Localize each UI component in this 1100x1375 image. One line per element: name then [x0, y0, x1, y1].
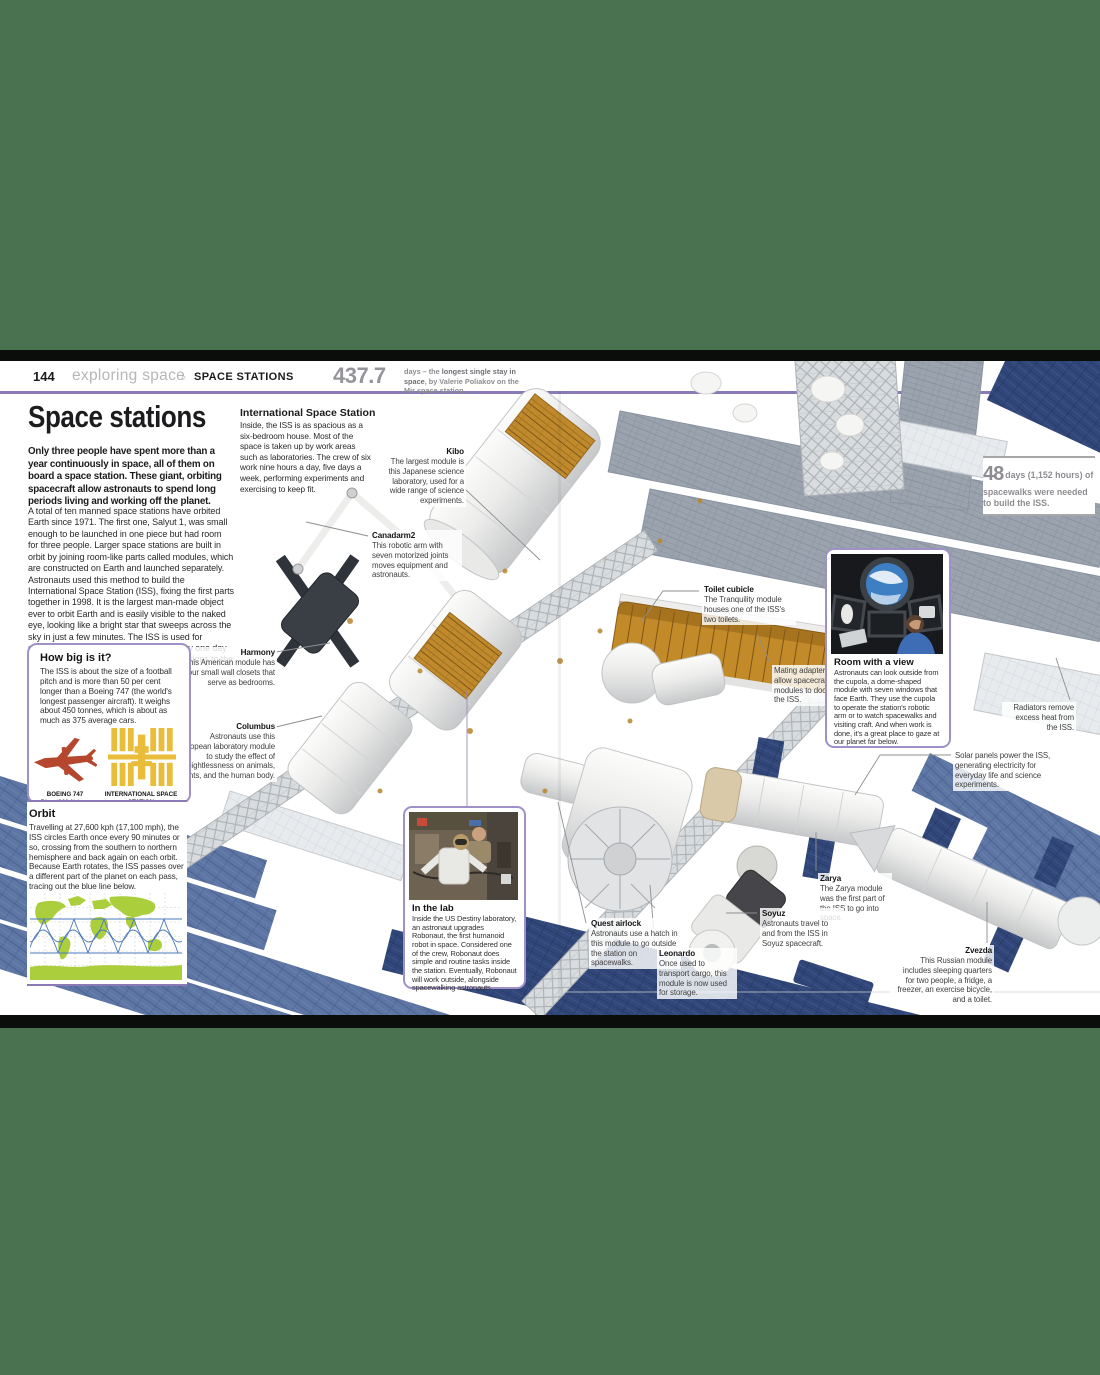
how-big-box: How big is it? The ISS is about the size… — [27, 643, 191, 804]
in-the-lab-title: In the lab — [412, 903, 454, 914]
label-radiators: Radiators remove excess heat from the IS… — [1002, 702, 1076, 733]
robonaut-photo — [409, 812, 518, 900]
room-with-a-view-text: Astronauts can look outside from the cup… — [834, 669, 942, 747]
label-soyuz: Soyuz Astronauts travel to and from the … — [760, 908, 844, 949]
label-harmony-text: This American module has four small wall… — [184, 658, 275, 687]
label-toilet-cubicle-text: The Tranquility module houses one of the… — [704, 595, 785, 624]
header-stat-value: 437.7 — [333, 363, 386, 389]
room-with-a-view-title: Room with a view — [834, 657, 914, 668]
cupola-photo — [831, 554, 943, 654]
label-toilet-cubicle: Toilet cubicle The Tranquility module ho… — [702, 584, 796, 625]
page-number: 144 — [33, 369, 55, 384]
header-topic: SPACE STATIONS — [194, 371, 294, 383]
label-zvezda: Zvezda This Russian module includes slee… — [890, 945, 994, 1006]
label-kibo-text: The largest module is this Japanese scie… — [388, 457, 464, 505]
in-the-lab-box: In the lab Inside the US Destiny laborat… — [403, 806, 526, 989]
boeing-747-icon — [33, 733, 97, 789]
label-columbus-text: Astronauts use this European laboratory … — [178, 732, 275, 780]
label-zvezda-name: Zvezda — [892, 946, 992, 956]
label-radiators-text: Radiators remove excess heat from the IS… — [1013, 703, 1074, 732]
label-kibo-name: Kibo — [379, 447, 464, 457]
zarya-module — [699, 737, 885, 881]
article-intro: Only three people have spent more than a… — [28, 446, 234, 509]
label-solar-panels: Solar panels power the ISS, generating e… — [953, 750, 1053, 791]
spacewalk-stat: 48days (1,152 hours) of spacewalks were … — [983, 456, 1095, 516]
book-spread: 144 exploring space ○ SPACE STATIONS 437… — [0, 0, 1100, 1375]
label-zvezda-text: This Russian module includes sleeping qu… — [898, 956, 992, 1004]
label-solar-panels-text: Solar panels power the ISS, generating e… — [955, 751, 1050, 789]
how-big-title: How big is it? — [40, 652, 112, 664]
header-separator-icon: ○ — [181, 373, 186, 382]
spacewalk-stat-value: 48 — [983, 463, 1003, 485]
label-toilet-cubicle-name: Toilet cubicle — [704, 585, 794, 595]
header-section: exploring space — [72, 367, 185, 385]
label-quest-airlock-name: Quest airlock — [591, 919, 679, 929]
label-soyuz-text: Astronauts travel to and from the ISS in… — [762, 919, 828, 948]
label-leonardo-text: Once used to transport cargo, this modul… — [659, 959, 727, 997]
label-kibo: Kibo The largest module is this Japanese… — [377, 446, 466, 507]
label-columbus-name: Columbus — [177, 722, 275, 732]
room-with-a-view-box: Room with a view Astronauts can look out… — [825, 548, 951, 748]
label-canadarm2-text: This robotic arm with seven motorized jo… — [372, 541, 448, 579]
orbit-text: Travelling at 27,600 kph (17,100 mph), t… — [29, 823, 185, 892]
stat-caption-pre: days – the — [404, 367, 442, 376]
orbit-title: Orbit — [29, 808, 55, 820]
how-big-text: The ISS is about the size of a football … — [40, 667, 182, 726]
label-soyuz-name: Soyuz — [762, 909, 842, 919]
boeing-caption-name: BOEING 747 — [47, 791, 83, 798]
label-zarya-name: Zarya — [820, 874, 890, 884]
page-title: Space stations — [28, 399, 206, 435]
page-top-edge — [0, 350, 1100, 361]
label-canadarm2-name: Canadarm2 — [372, 531, 460, 541]
label-canadarm2: Canadarm2 This robotic arm with seven mo… — [370, 530, 462, 581]
iss-overview-text: Inside, the ISS is as spacious as a six-… — [240, 420, 374, 494]
iss-overview-heading: International Space Station — [240, 407, 375, 419]
iss-diagram-icon — [99, 723, 185, 791]
label-leonardo-name: Leonardo — [659, 949, 735, 959]
page-gutter — [558, 391, 561, 1013]
page-bottom-edge — [0, 1015, 1100, 1028]
orbit-map — [30, 893, 182, 980]
header-stat-caption: days – the longest single stay in space,… — [404, 367, 522, 396]
in-the-lab-text: Inside the US Destiny laboratory, an ast… — [412, 915, 517, 993]
label-leonardo: Leonardo Once used to transport cargo, t… — [657, 948, 737, 999]
docked-supply-craft — [276, 554, 362, 667]
orbit-panel: Orbit Travelling at 27,600 kph (17,100 m… — [27, 800, 187, 986]
